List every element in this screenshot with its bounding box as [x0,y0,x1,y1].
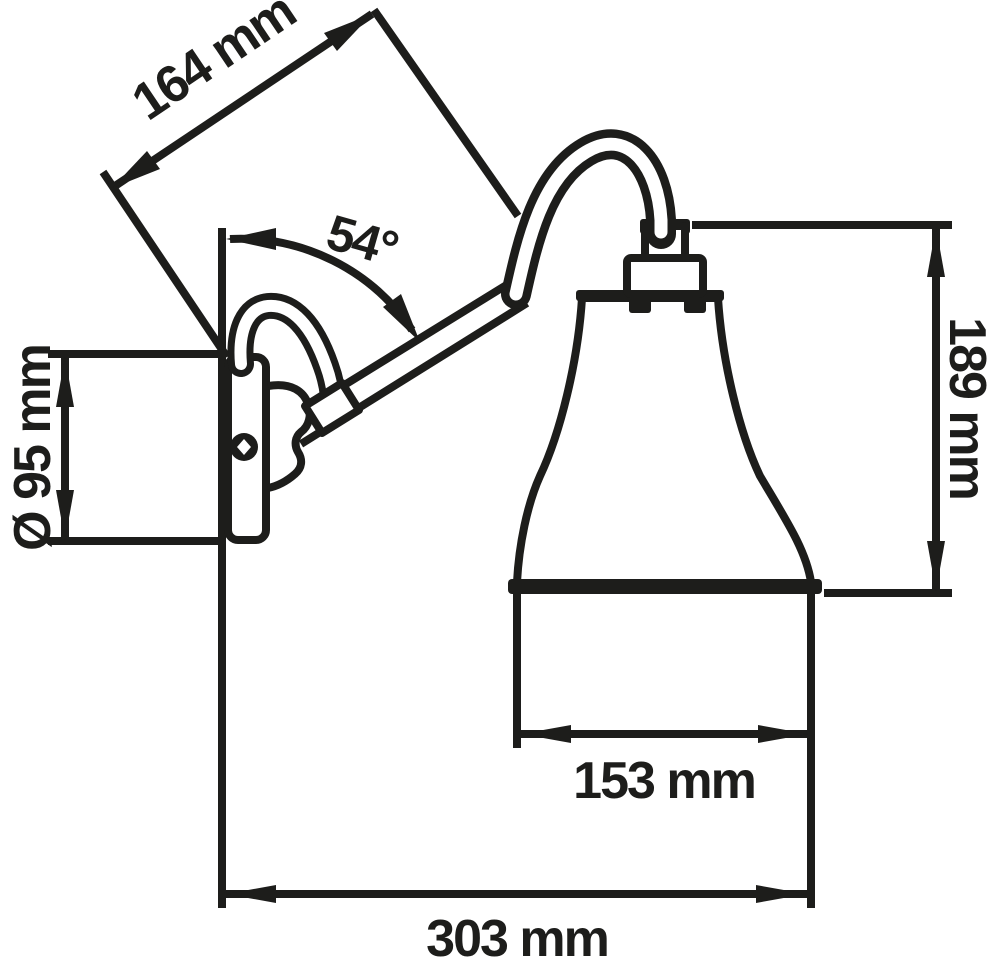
arm-upper-edge [325,281,513,397]
arrow-54-top-icon [226,228,276,250]
arrow-189-up-icon [927,227,945,277]
shade-bell [517,298,811,582]
dim-label-height: 189 mm [938,317,996,499]
shade-tab-right [684,299,706,313]
dim-label-plate-diameter: Ø 95 mm [4,345,62,551]
dimension-arm-length: 164 mm [103,0,518,357]
socket-base-block [627,258,703,294]
dimension-projection: 303 mm [224,885,808,968]
arm-pivot-block [305,383,359,433]
lamp-dimension-drawing: 164 mm 54° Ø 95 mm 189 mm 153 mm 303 mm [0,0,1000,969]
arrow-189-down-icon [927,541,945,591]
bracket-profile [268,385,310,488]
dim-ext-164-lower [103,172,227,357]
dim-ext-164-upper [374,10,518,216]
arrow-303-right-icon [756,885,806,903]
drawing-canvas: 164 mm 54° Ø 95 mm 189 mm 153 mm 303 mm [0,0,1000,969]
dimension-shade-diameter: 153 mm [519,725,810,810]
dim-label-shade-diameter: 153 mm [573,752,755,810]
lamp-shade [508,290,822,908]
arrow-153-right-icon [758,725,808,743]
dim-label-arm-angle: 54° [321,204,403,277]
arrow-303-left-icon [226,885,276,903]
shade-tab-left [629,299,651,313]
dim-label-projection: 303 mm [426,910,608,968]
dimension-plate-diameter: Ø 95 mm [4,345,221,551]
dim-label-arm-length: 164 mm [122,0,305,132]
arrow-153-left-icon [521,725,571,743]
shade-band [508,579,822,594]
